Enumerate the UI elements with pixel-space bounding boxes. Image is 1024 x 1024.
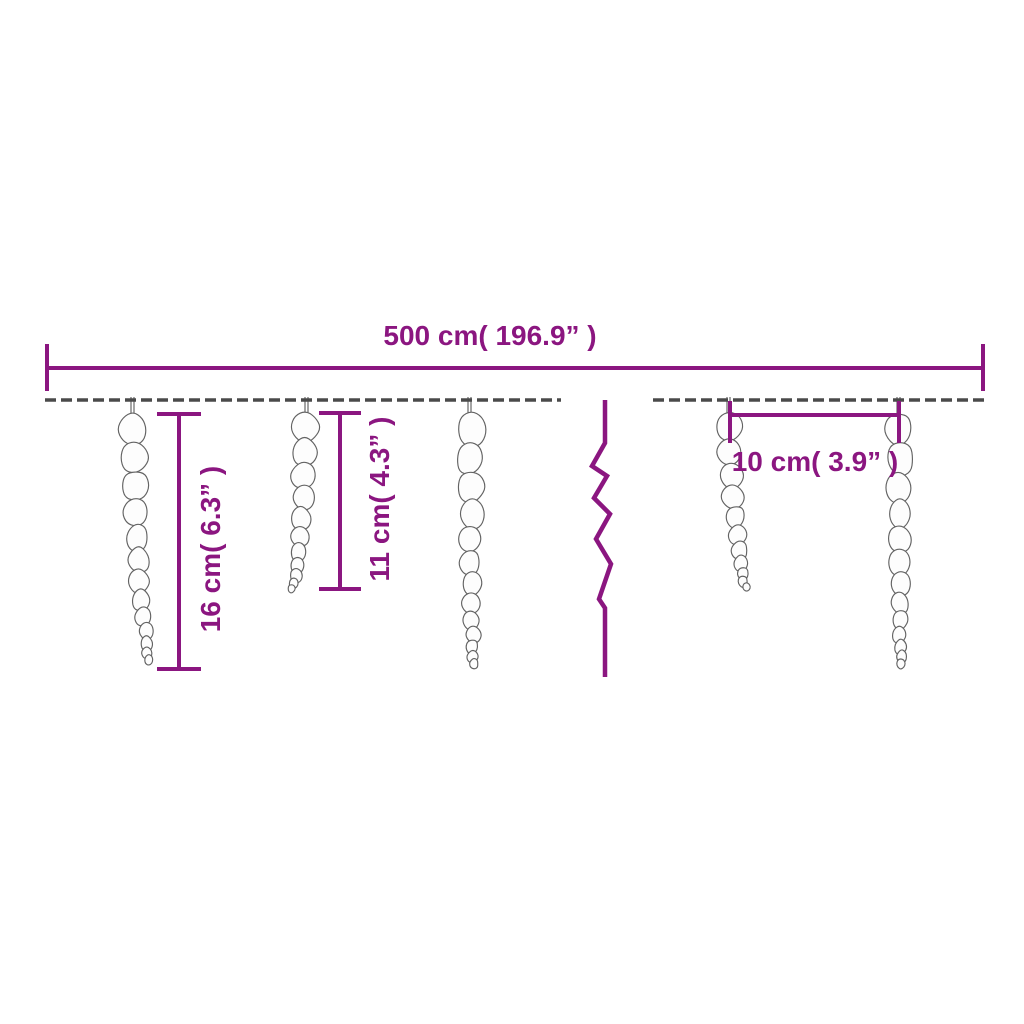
icicle-2 (288, 412, 319, 593)
dimension-icicle-spacing (730, 401, 899, 443)
dimension-total-width (47, 344, 983, 391)
dimension-short-icicle (319, 413, 361, 589)
icicle-3 (458, 412, 486, 669)
dimension-label-short-icicle: 11 cm( 4.3” ) (365, 417, 395, 582)
icicle-1 (118, 413, 153, 665)
icicle-4 (717, 412, 750, 591)
dimension-label-icicle-spacing: 10 cm( 3.9” ) (732, 447, 899, 477)
diagram-art (0, 0, 1024, 1024)
break-symbol-zigzag-icon (592, 400, 611, 677)
dimension-label-total-width: 500 cm( 196.9” ) (383, 321, 596, 351)
dimension-label-long-icicle: 16 cm( 6.3” ) (196, 466, 226, 633)
diagram-canvas: 500 cm( 196.9” ) 16 cm( 6.3” ) 11 cm( 4.… (0, 0, 1024, 1024)
